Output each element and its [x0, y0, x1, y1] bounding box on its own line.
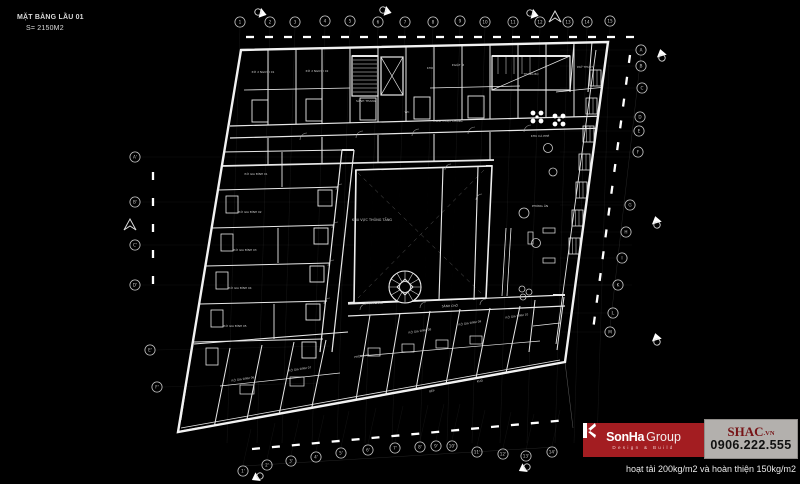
fixture: [306, 304, 320, 320]
wall: [332, 150, 354, 352]
room-label: KHU VỰC THÔNG TẦNG: [352, 217, 392, 222]
plant: [553, 122, 558, 127]
fixture: [569, 238, 580, 254]
fixture: [211, 310, 223, 327]
grid-bubble-label: D': [133, 283, 137, 288]
grid-bubble-label: 2': [265, 463, 269, 468]
load-note: hoạt tải 200kg/m2 và hoàn thiện 150kg/m2: [622, 464, 800, 474]
grid-bubble-label: 5': [339, 451, 343, 456]
plan-geometry: [341, 411, 349, 447]
table: [519, 286, 525, 292]
grid-bubble-label: H: [624, 230, 627, 235]
grid-bubble-label: 2: [269, 20, 272, 25]
room-label: P.Ở GIA ĐÌNH 09: [458, 318, 482, 327]
grid-bubble-label: E: [638, 129, 641, 134]
room-label: PHÒNG ĂN: [532, 203, 548, 208]
grid-bubble-label: 13': [523, 454, 529, 459]
grid-bubble-label: 13: [565, 20, 571, 25]
plant: [561, 114, 566, 119]
grid-bubble-label: 6: [377, 20, 380, 25]
brand-suffix: Group: [646, 430, 681, 444]
grid-bubble-label: L: [612, 311, 615, 316]
wall: [230, 128, 606, 138]
section-flag: [656, 49, 667, 62]
plan-geometry: [243, 429, 251, 465]
wall: [222, 150, 342, 152]
fixture: [402, 344, 414, 352]
table: [544, 144, 553, 153]
room-label: SẢNH CHỜ: [442, 303, 459, 309]
door-arc: [468, 127, 475, 134]
plan-geometry: [436, 404, 444, 440]
plant: [531, 119, 536, 124]
wall: [181, 360, 560, 428]
grid-bubble-label: 8': [418, 445, 422, 450]
room-label: P.Ở GIA ĐÌNH 03: [233, 247, 256, 252]
grid-bubble-label: 14: [584, 20, 590, 25]
screenshot-root: 123456789101112131415ABCDEFGHIKLMA'B'C'D…: [0, 0, 800, 484]
shac-site-name: SHAC: [727, 424, 763, 439]
room-label: P.GIẶT ỦI: [452, 62, 465, 67]
brand-banner: SonHa Group Design & Build SHAC.VN 0906.…: [578, 417, 800, 460]
grid-bubble-label: D: [638, 115, 641, 120]
section-flag-pennant: [517, 463, 528, 475]
fixture: [306, 99, 322, 121]
grid-bubble-label: I: [621, 256, 622, 261]
section-flag-pennant: [651, 216, 662, 225]
grid-bubble-label: 5: [349, 19, 352, 24]
door-arc: [420, 302, 426, 308]
grid-bubble-label: 12: [537, 20, 543, 25]
grid-bubble-label: 8: [432, 20, 435, 25]
setback-dashed-line: [252, 420, 567, 449]
plan-geometry: [610, 55, 641, 327]
grid-bubble-label: 3: [294, 20, 297, 25]
fixture: [543, 228, 555, 233]
section-flag: [517, 461, 532, 475]
room-label: P.KỸ THUẬT: [577, 64, 593, 69]
room-label: P.Ở GIA ĐÌNH 08: [408, 326, 432, 335]
grid-bubble-label: 14': [549, 450, 555, 455]
door-arc: [524, 125, 531, 132]
room-label: P.Ở GIA ĐÌNH 04: [228, 285, 251, 290]
plant: [561, 122, 566, 127]
room-label: P.Ở GIA ĐÌNH 05: [223, 323, 246, 328]
room-label: P.Ở 2 NGƯỜI 02: [306, 68, 329, 73]
plant: [553, 114, 558, 119]
wall: [244, 88, 350, 90]
grid-bubble-label: 11': [474, 450, 480, 455]
plan-geometry: [565, 362, 573, 428]
grid-bubble-label: A: [640, 48, 643, 53]
fixture: [314, 228, 328, 244]
sonha-k-icon: [583, 423, 596, 438]
room-label: SẢNH THANG: [356, 98, 377, 103]
grid-bubble-label: 10': [449, 444, 455, 449]
door-arc: [336, 184, 342, 190]
plan-geometry: [503, 412, 511, 448]
grid-bubble-label: B': [133, 200, 137, 205]
room-label: P.SINH HOẠT CHUNG: [433, 119, 462, 123]
room-label: P.Ở GIA ĐÌNH 07: [288, 364, 312, 373]
table: [549, 168, 557, 176]
wall: [502, 228, 506, 296]
section-flag-pennant: [656, 49, 667, 58]
grid-bubble-label: E': [148, 348, 152, 353]
room-label: KHU CÀ PHÊ: [531, 133, 550, 138]
grid-bubble-label: 7': [393, 446, 397, 451]
grid-bubble-label: M: [608, 330, 612, 335]
grid-bubble-label: 15: [607, 19, 613, 24]
section-flag: [651, 216, 662, 229]
grid-bubble-label: 10: [482, 20, 488, 25]
table: [519, 208, 529, 218]
drawing-title-line1: MẶT BẰNG LẦU 01: [17, 13, 84, 24]
section-flag: [253, 6, 268, 20]
grid-bubble-label: 4': [314, 455, 318, 460]
interior-walls-layer: [178, 42, 606, 432]
fixture: [528, 232, 533, 244]
fixture: [216, 272, 228, 289]
plan-geometry: [267, 423, 275, 459]
room-label: KHO: [476, 378, 483, 383]
room-label: P.Ở GIA ĐÌNH 10: [505, 311, 529, 320]
wall: [214, 348, 230, 428]
plan-geometry: [291, 419, 299, 455]
room-label: KHO: [427, 66, 434, 70]
plant: [531, 111, 536, 116]
section-flag-pennant: [250, 472, 261, 484]
plan-geometry: [156, 346, 330, 350]
fixture: [302, 342, 316, 358]
sonha-logo: SonHa Group Design & Build: [583, 423, 704, 457]
fixture: [318, 190, 332, 206]
north-arrow-glyph: [549, 11, 561, 22]
section-flag-pennant: [651, 333, 662, 342]
setback-dashed-line: [593, 55, 630, 330]
section-flag-pennant: [382, 6, 393, 18]
north-arrow-glyph: [124, 219, 136, 230]
grid-bubble-label: F: [637, 150, 640, 155]
wall: [507, 228, 511, 296]
grid-bubble-label: 3': [289, 459, 293, 464]
section-flag: [250, 470, 265, 484]
wall: [206, 263, 330, 266]
fixture: [436, 340, 448, 348]
room-label: PHÒNG ĂN: [354, 352, 370, 359]
plan-geometry: [597, 27, 610, 443]
wall: [533, 323, 560, 326]
room-label: HÀNH LANG: [365, 300, 384, 306]
brand-row: SonHa Group: [606, 430, 681, 444]
room-label: P.Ở GIA ĐÌNH 01: [244, 171, 267, 176]
grid-bubble-label: 11: [510, 20, 516, 25]
room-label: WC: [405, 110, 410, 114]
shac-site: SHAC.VN: [727, 425, 774, 438]
grid-bubble-label: 9': [434, 444, 438, 449]
floorplan-canvas: 123456789101112131415ABCDEFGHIKLMA'B'C'D…: [0, 0, 800, 484]
wall: [430, 86, 520, 88]
drawing-title: MẶT BẰNG LẦU 01 S= 2150M2: [17, 13, 84, 35]
room-label: THANG BỘ: [523, 71, 540, 76]
grid-bubble-label: 1: [239, 20, 242, 25]
plant: [535, 115, 538, 118]
plan-geometry: [316, 415, 324, 451]
plant: [557, 118, 560, 121]
section-flag: [651, 333, 662, 346]
grid-bubble-label: 1': [241, 469, 245, 474]
fixture: [252, 100, 268, 122]
grid-bubble-label: A': [133, 155, 137, 160]
brand-tagline: Design & Build: [612, 445, 674, 450]
section-flag: [378, 4, 393, 18]
grid-bubble-label: G: [628, 203, 631, 208]
grid-bubble-label: 7: [404, 20, 407, 25]
plan-geometry: [452, 404, 460, 440]
grid-bubble-label: C: [641, 86, 644, 91]
wall: [476, 308, 490, 378]
door-arc: [480, 299, 486, 305]
fixture: [468, 96, 484, 118]
grid-bubble-label: F': [155, 385, 159, 390]
fixture: [414, 97, 430, 119]
grid-bubble-label: B: [640, 64, 643, 69]
room-label: P.Ở GIA ĐÌNH 06: [231, 374, 255, 383]
fixture: [226, 196, 238, 213]
door-arc: [332, 222, 338, 228]
grid-bubble-label: C': [133, 243, 137, 248]
wall: [320, 150, 342, 352]
fixture: [206, 348, 218, 365]
wall: [230, 116, 606, 126]
phone-number: 0906.222.555: [710, 438, 791, 452]
grid-bubble-label: 12': [500, 452, 506, 457]
north-arrow: [549, 11, 561, 22]
plant: [539, 111, 544, 116]
plant: [539, 119, 544, 124]
grid-bubble-label: 9: [459, 19, 462, 24]
fixture: [543, 258, 555, 263]
fixture: [470, 336, 482, 344]
void-outline: [354, 166, 492, 303]
wall: [194, 332, 348, 344]
grid-bubble-label: 6': [366, 448, 370, 453]
drawing-area-value: S= 2150M2: [26, 24, 84, 35]
plan-geometry: [337, 27, 350, 443]
wall: [221, 160, 494, 166]
shac-site-tld: .VN: [764, 430, 775, 437]
room-label: P.Ở GIA ĐÌNH 02: [238, 209, 261, 214]
table: [526, 289, 532, 295]
north-arrow: [124, 219, 136, 230]
grid-bubble-label: K: [617, 283, 620, 288]
fixture: [221, 234, 233, 251]
shac-contact-box: SHAC.VN 0906.222.555: [704, 419, 798, 459]
brand-name: SonHa: [606, 430, 644, 444]
room-label: P.Ở 2 NGƯỜI 01: [252, 69, 275, 74]
wall: [200, 301, 327, 304]
grid-bubble-label: 4: [324, 19, 327, 24]
